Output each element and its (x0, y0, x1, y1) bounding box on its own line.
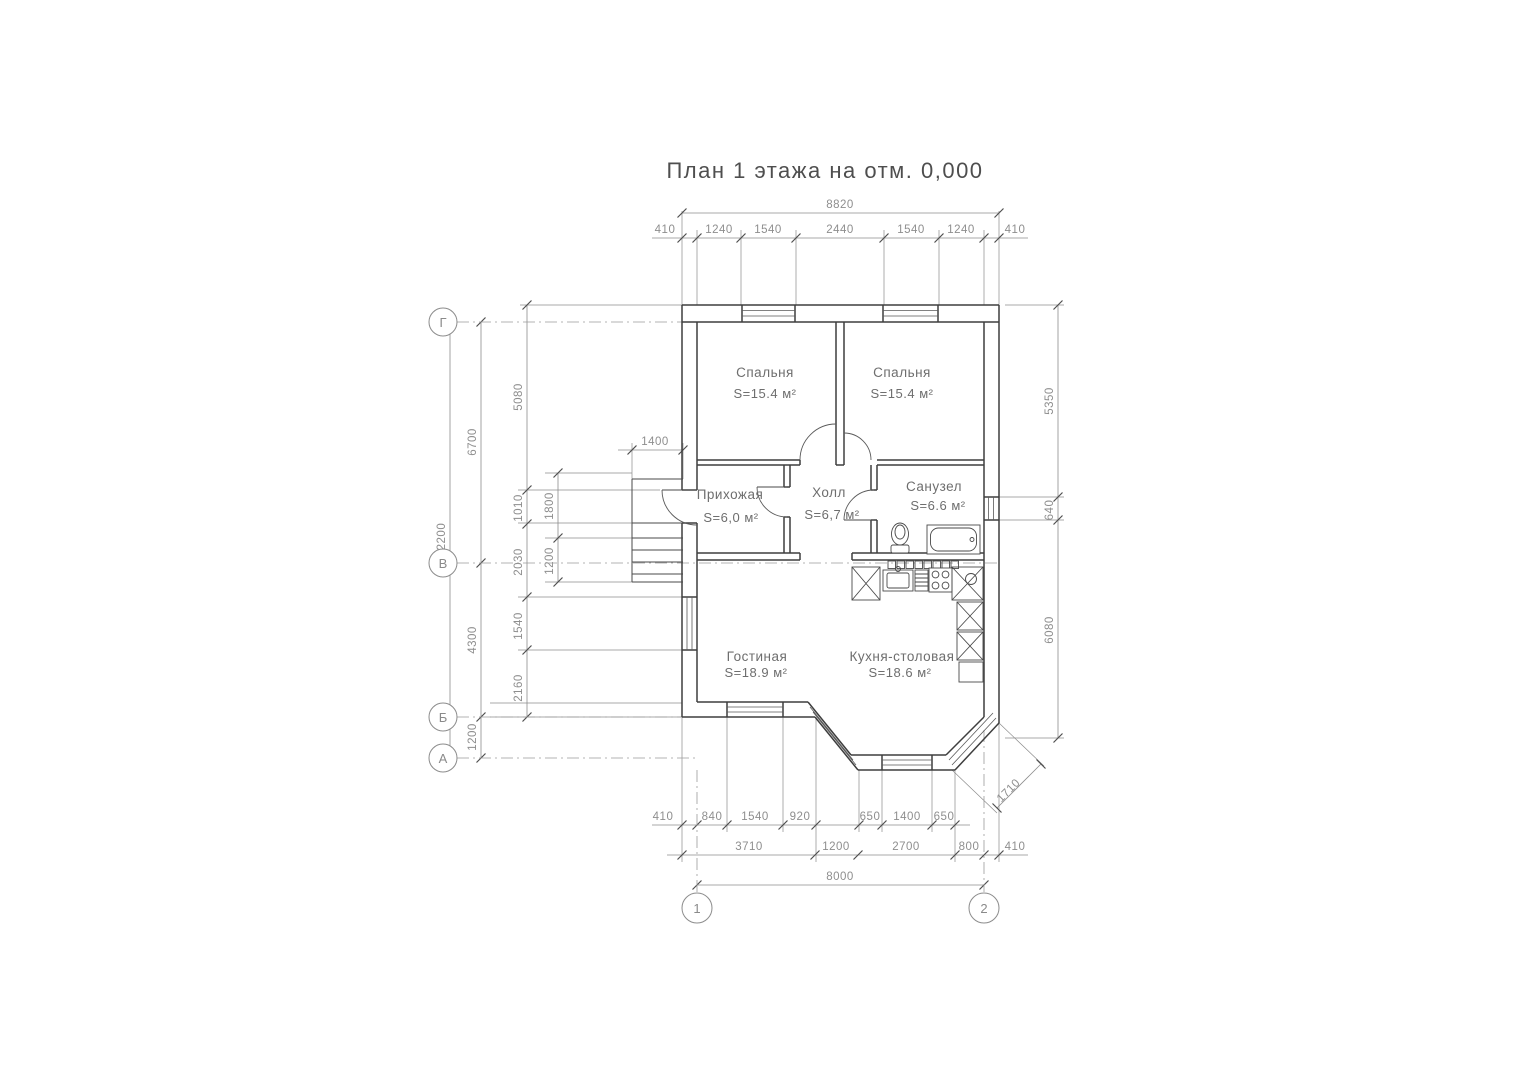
axis-label-g: Г (439, 315, 446, 330)
dim-top-seg-1: 1240 (705, 224, 733, 236)
dim-bot2-1: 1200 (822, 841, 850, 853)
dim-right-0: 5350 (1044, 387, 1056, 415)
dim-bot1-1: 840 (702, 811, 723, 823)
dim-left-axis-1: 4300 (467, 626, 479, 654)
dim-top-seg-6: 410 (1005, 224, 1026, 236)
dim-bot2-3: 800 (959, 841, 980, 853)
dim-bot2-4: 410 (1005, 841, 1026, 853)
axis-bubble-a: А (429, 744, 457, 772)
svg-text:S=6,0 м²: S=6,0 м² (703, 510, 758, 525)
svg-text:S=15.4 м²: S=15.4 м² (871, 386, 934, 401)
axis-bubble-2: 2 (969, 893, 999, 923)
room-label-hall: Холл S=6,7 м² (804, 485, 859, 522)
dim-stairs-1: 1200 (544, 547, 556, 575)
sink-icon (883, 567, 913, 592)
dim-bot1-2: 1540 (741, 811, 769, 823)
toilet-icon (891, 523, 909, 553)
corner-cabinet-icon (952, 567, 983, 600)
bedroom2-door (844, 433, 871, 460)
axis-bubble-g: Г (429, 308, 457, 336)
dim-right-2: 6080 (1044, 616, 1056, 644)
svg-text:S=15.4 м²: S=15.4 м² (734, 386, 797, 401)
dim-left-axis-2: 1200 (467, 723, 479, 751)
tall-cabinet-icons (957, 602, 983, 682)
svg-text:Спальня: Спальня (873, 365, 931, 380)
bedroom1-door (800, 424, 836, 460)
bathtub-icon (927, 525, 980, 554)
dim-bot1-5: 1400 (893, 811, 921, 823)
dim-bot2-0: 3710 (735, 841, 763, 853)
dim-left-wall-2: 2030 (513, 548, 525, 576)
dim-top-seg-5: 1240 (947, 224, 975, 236)
dim-left-wall-3: 1540 (513, 612, 525, 640)
room-label-bathroom: Санузел S=6.6 м² (906, 479, 966, 513)
room-labels: Спальня S=15.4 м² Спальня S=15.4 м² Прих… (697, 365, 966, 680)
axis-label-2: 2 (980, 901, 987, 916)
dim-top-seg-2: 1540 (754, 224, 782, 236)
room-label-bedroom-1: Спальня S=15.4 м² (734, 365, 797, 401)
svg-text:Кухня-столовая: Кухня-столовая (850, 649, 955, 664)
axis-bubble-b: Б (429, 703, 457, 731)
axis-label-b: Б (439, 710, 448, 725)
room-label-living-room: Гостиная S=18.9 м² (725, 649, 788, 680)
dim-top-seg-3: 2440 (826, 224, 854, 236)
svg-text:S=18.6 м²: S=18.6 м² (869, 665, 932, 680)
base-cabinet-icon (852, 567, 880, 600)
dim-stairs-width: 1400 (641, 436, 669, 448)
dim-bot2-2: 2700 (892, 841, 920, 853)
axis-bubble-v: В (429, 549, 457, 577)
dim-bot1-6: 650 (934, 811, 955, 823)
svg-text:S=6,7 м²: S=6,7 м² (804, 507, 859, 522)
svg-text:S=6.6 м²: S=6.6 м² (910, 498, 965, 513)
axis-label-a: А (439, 751, 448, 766)
dim-bot1-4: 650 (860, 811, 881, 823)
dim-stairs-0: 1800 (544, 492, 556, 520)
bathroom-fixtures (891, 523, 980, 554)
dim-bottom-total: 8000 (826, 871, 854, 883)
drawing-sheet: План 1 этажа на отм. 0,000 (0, 0, 1528, 1080)
dim-bot1-0: 410 (653, 811, 674, 823)
axis-label-v: В (439, 556, 448, 571)
drawing-title: План 1 этажа на отм. 0,000 (666, 158, 983, 183)
svg-text:S=18.9 м²: S=18.9 м² (725, 665, 788, 680)
room-label-bedroom-2: Спальня S=15.4 м² (871, 365, 934, 401)
axis-bubble-1: 1 (682, 893, 712, 923)
stove-icon (929, 568, 952, 592)
svg-text:Прихожая: Прихожая (697, 487, 764, 502)
dim-top-seg-4: 1540 (897, 224, 925, 236)
dim-left-wall-0: 5080 (513, 383, 525, 411)
dim-top-seg-0: 410 (655, 224, 676, 236)
svg-text:Спальня: Спальня (736, 365, 794, 380)
dim-top-total: 8820 (826, 199, 854, 211)
dim-left-axis-0: 6700 (467, 428, 479, 456)
room-label-kitchen: Кухня-столовая S=18.6 м² (850, 649, 955, 680)
stairs (632, 479, 683, 582)
floor-plan: План 1 этажа на отм. 0,000 (0, 0, 1528, 1080)
svg-text:Гостиная: Гостиная (727, 649, 788, 664)
dim-right-1: 640 (1044, 500, 1056, 521)
entry-door (662, 490, 697, 525)
svg-text:Санузел: Санузел (906, 479, 962, 494)
dim-left-wall-4: 2160 (513, 674, 525, 702)
dim-left-wall-1: 1010 (513, 494, 525, 522)
room-label-entry-hall: Прихожая S=6,0 м² (697, 487, 764, 525)
axis-label-1: 1 (693, 901, 700, 916)
dim-bot1-3: 920 (790, 811, 811, 823)
dishwasher-icon (915, 570, 928, 591)
svg-text:Холл: Холл (812, 485, 846, 500)
wall-cabinet-row (888, 561, 959, 569)
